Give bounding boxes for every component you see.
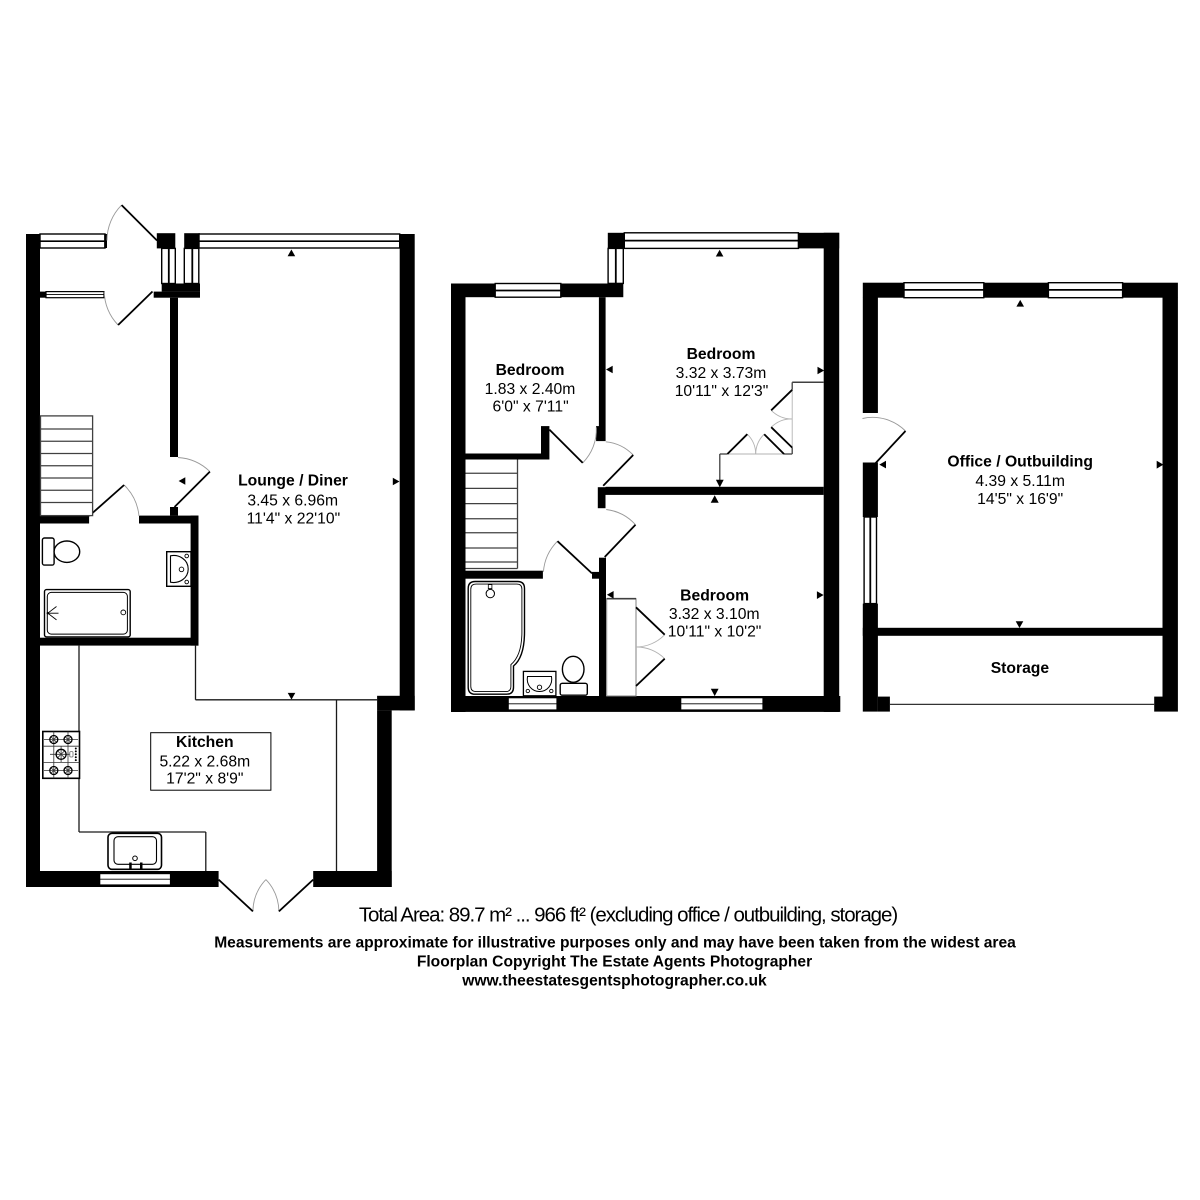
svg-text:Storage: Storage (991, 660, 1050, 677)
svg-text:11'4" x 22'10": 11'4" x 22'10" (247, 510, 341, 527)
svg-text:Total Area: 89.7 m² ... 966 ft: Total Area: 89.7 m² ... 966 ft² (excludi… (359, 904, 898, 927)
svg-text:3.32 x 3.10m: 3.32 x 3.10m (669, 606, 760, 623)
svg-text:Office / Outbuilding: Office / Outbuilding (947, 454, 1093, 471)
svg-text:3.32 x 3.73m: 3.32 x 3.73m (676, 365, 767, 382)
svg-text:Lounge / Diner: Lounge / Diner (238, 472, 348, 489)
svg-text:3.45 x 6.96m: 3.45 x 6.96m (247, 493, 338, 510)
svg-text:Floorplan Copyright The Estate: Floorplan Copyright The Estate Agents Ph… (417, 953, 812, 970)
svg-text:10'11" x 10'2": 10'11" x 10'2" (668, 624, 762, 641)
svg-text:4.39 x 5.11m: 4.39 x 5.11m (975, 473, 1065, 490)
svg-text:6'0" x 7'11": 6'0" x 7'11" (493, 399, 569, 416)
svg-text:10'11" x 12'3": 10'11" x 12'3" (675, 383, 769, 400)
svg-text:14'5" x 16'9": 14'5" x 16'9" (977, 491, 1063, 508)
svg-text:Bedroom: Bedroom (496, 362, 565, 379)
svg-text:Bedroom: Bedroom (687, 346, 756, 363)
svg-text:Measurements are approximate f: Measurements are approximate for illustr… (214, 935, 1016, 952)
svg-text:5.22 x 2.68m: 5.22 x 2.68m (159, 753, 250, 770)
svg-text:17'2" x 8'9": 17'2" x 8'9" (166, 770, 243, 787)
svg-text:Kitchen: Kitchen (176, 734, 234, 751)
svg-text:www.theestatesgentsphotographe: www.theestatesgentsphotographer.co.uk (461, 972, 767, 989)
svg-text:Bedroom: Bedroom (680, 588, 749, 605)
svg-text:1.83 x 2.40m: 1.83 x 2.40m (485, 381, 576, 398)
